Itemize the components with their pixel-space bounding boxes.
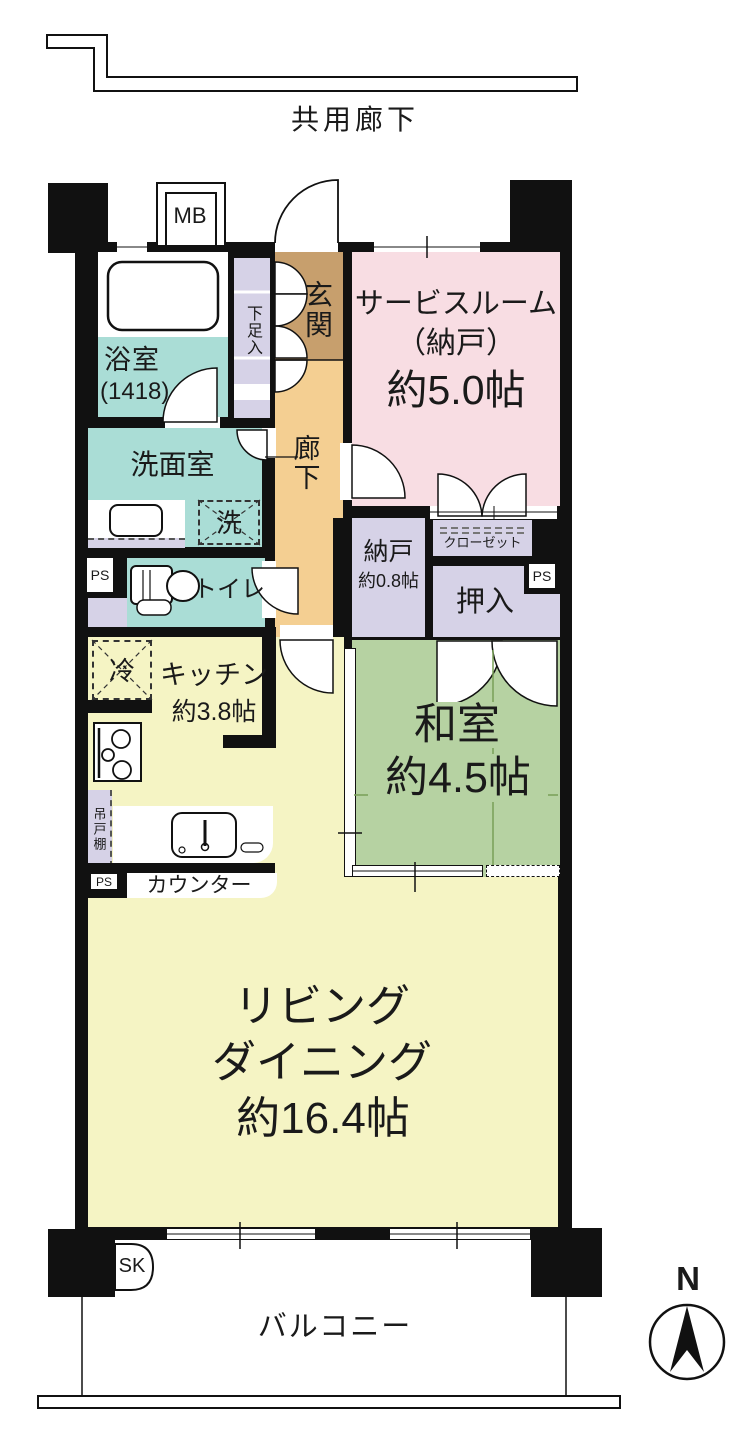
slop-sink-label: SK [116, 1255, 148, 1277]
burner [112, 730, 130, 748]
burner [102, 749, 114, 761]
compass-north-label: N [670, 1260, 706, 1296]
toilet-base [137, 600, 171, 615]
toilet-label: トイレ [196, 577, 262, 603]
meter-box-label: MB [159, 200, 221, 232]
toilet-tank [131, 566, 172, 604]
nando-label: 納戸 [352, 538, 425, 566]
balcony-label: バルコニー [240, 1310, 430, 1344]
nando-size-label: 約0.8帖 [352, 570, 425, 592]
common-corridor-label: 共用廊下 [240, 103, 470, 137]
floor-plan: 共用廊下 MB 浴室 (1418) 下足入 玄関 サービスルーム （納戸） 約5… [0, 0, 744, 1430]
burner [113, 761, 131, 779]
washitsu-size-label: 約4.5帖 [368, 754, 548, 802]
service-door-arc [352, 445, 405, 498]
shoe-cabinet-label: 下足入 [236, 290, 268, 370]
closet-label: クローゼット [433, 534, 532, 550]
living-label-2: ダイニング [212, 1040, 432, 1086]
washer-label: 洗 [213, 508, 245, 538]
service-room-size-label: 約5.0帖 [352, 368, 560, 412]
bath-size-label: (1418) [100, 378, 190, 406]
hall-label: 廊下 [287, 418, 321, 508]
washitsu-label: 和室 [406, 702, 508, 748]
ps-label-counter: PS [92, 875, 116, 888]
washroom-door-arc [237, 430, 267, 460]
vanity-sink [110, 505, 162, 536]
ps-label-oshiire: PS [529, 567, 555, 585]
shoe-door-arc [275, 360, 307, 392]
bath-label: 浴室 [104, 345, 184, 375]
balcony-edge [38, 1396, 620, 1408]
entrance-door-arc [275, 180, 338, 243]
ps-label-toilet: PS [88, 566, 112, 584]
service-room-sub-label: （納戸） [352, 326, 560, 362]
service-room-label: サービスルーム [352, 288, 560, 320]
kitchen-label: キッチン [158, 660, 270, 690]
hanging-cupboard-label: 吊戸棚 [88, 794, 110, 864]
bathtub [108, 262, 218, 330]
living-size-label: 約16.4帖 [228, 1096, 418, 1142]
counter-label: カウンター [135, 873, 263, 897]
closet-door-arc [438, 474, 482, 516]
fridge-label: 冷 [107, 657, 137, 685]
plan-linework [0, 0, 744, 1430]
oshiire-door-arc [492, 641, 557, 706]
washroom-label: 洗面室 [110, 448, 235, 482]
closet-door-arc [482, 474, 526, 516]
corridor-outline [47, 35, 577, 91]
oshiire-label: 押入 [440, 586, 530, 618]
kitchen-size-label: 約3.8帖 [162, 698, 266, 726]
hall-door-arc [280, 640, 333, 693]
living-label-1: リビング [232, 984, 412, 1030]
genkan-label: 玄関 [300, 264, 334, 356]
